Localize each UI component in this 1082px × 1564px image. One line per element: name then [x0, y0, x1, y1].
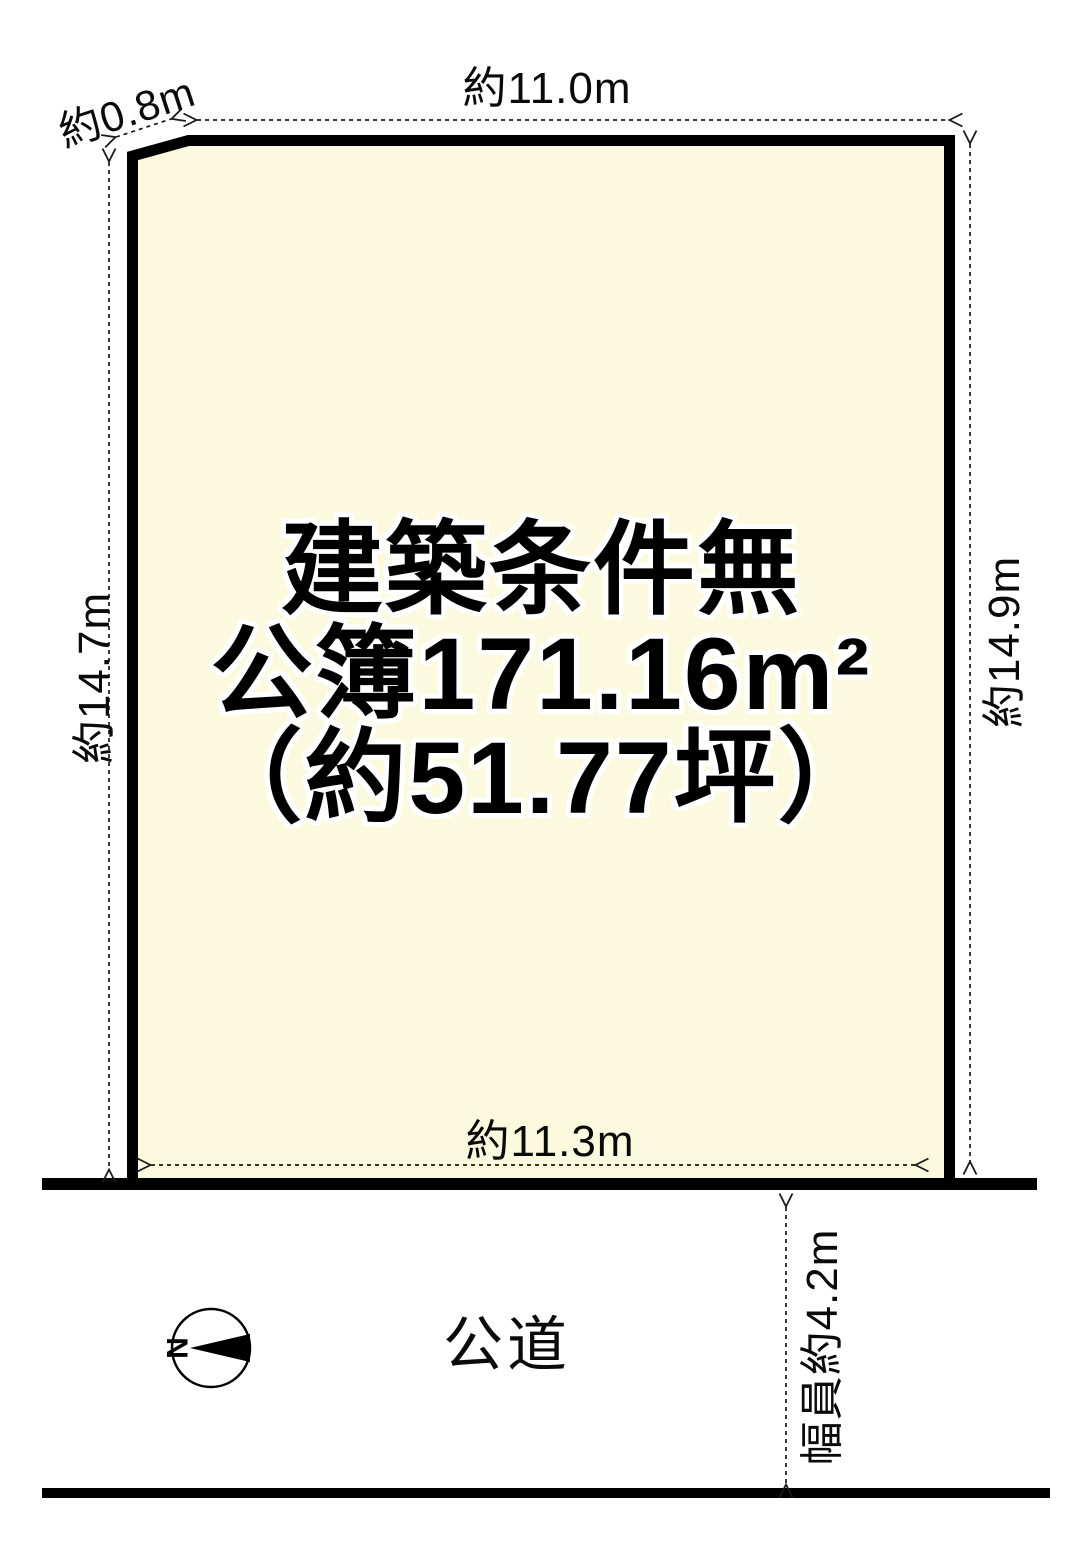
compass-north-label: N: [162, 1337, 195, 1359]
road-upper-edge: [42, 1178, 1037, 1190]
plot-caption-line3: （約51.77坪）: [127, 726, 955, 830]
dimension-label-left: 約14.7m: [58, 592, 122, 764]
plot-caption-line2: 公簿171.16m²: [127, 622, 955, 726]
compass: N: [162, 1309, 251, 1387]
road-name-label: 公道: [443, 1297, 571, 1384]
dimension-label-right: 約14.9m: [968, 556, 1032, 728]
road-lower-edge: [42, 1488, 1050, 1498]
plot-caption: 建築条件無 公簿171.16m² （約51.77坪）: [127, 518, 955, 830]
dimension-label-top: 約11.0m: [462, 52, 631, 116]
dimension-label-bottom: 約11.3m: [465, 1105, 634, 1169]
land-plot-diagram: N 建築条件無 公簿171.16m² （約51.77坪） 約11.0m 約11.…: [0, 0, 1082, 1564]
dimension-label-road-width: 幅員約4.2m: [786, 1229, 850, 1466]
plot-caption-line1: 建築条件無: [127, 518, 955, 622]
